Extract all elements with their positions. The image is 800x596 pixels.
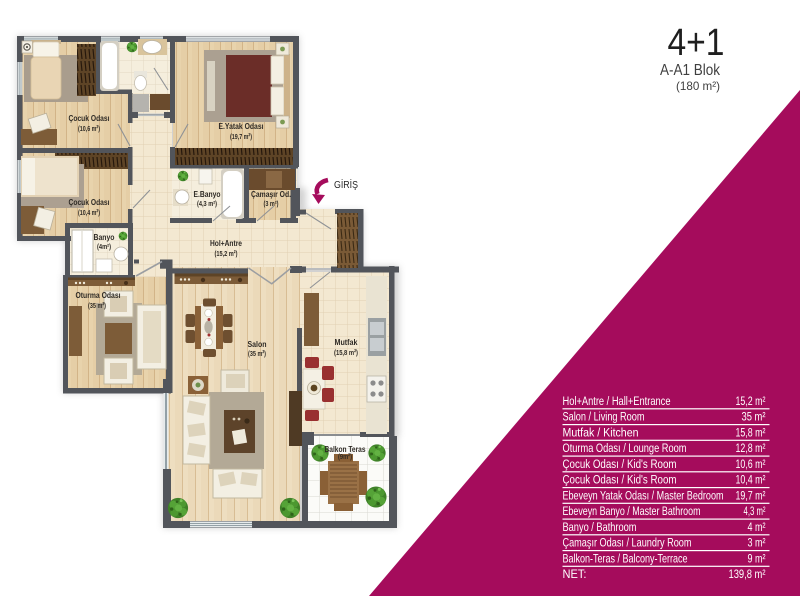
svg-text:Çamaşır Od.: Çamaşır Od. [251, 190, 291, 199]
svg-text:GİRİŞ: GİRİŞ [334, 178, 358, 191]
svg-text:Mutfak: Mutfak [335, 337, 358, 347]
svg-text:19,7 m²: 19,7 m² [736, 488, 766, 502]
svg-text:(10,4 m²): (10,4 m²) [78, 208, 100, 217]
svg-text:3 m²: 3 m² [748, 536, 766, 550]
svg-text:Çocuk Odası / Kid's Room: Çocuk Odası / Kid's Room [563, 473, 677, 487]
svg-text:Balkon-Teras / Balcony-Terrace: Balkon-Teras / Balcony-Terrace [563, 551, 688, 565]
svg-text:E.Banyo: E.Banyo [194, 190, 221, 199]
svg-text:Banyo: Banyo [94, 233, 115, 242]
svg-text:10,4 m²: 10,4 m² [736, 473, 766, 487]
svg-text:35 m²: 35 m² [742, 410, 766, 424]
svg-text:Banyo / Bathroom: Banyo / Bathroom [563, 520, 637, 534]
svg-text:139,8 m²: 139,8 m² [729, 567, 766, 581]
svg-text:Oturma Odası: Oturma Odası [76, 290, 121, 300]
svg-text:Ebeveyn Yatak Odası / Master B: Ebeveyn Yatak Odası / Master Bedroom [563, 488, 724, 502]
svg-text:12,8 m²: 12,8 m² [736, 441, 766, 455]
svg-text:Çocuk Odası: Çocuk Odası [69, 113, 110, 123]
svg-text:4+1: 4+1 [668, 22, 725, 64]
svg-text:9 m²: 9 m² [748, 551, 766, 565]
svg-text:15,2 m²: 15,2 m² [736, 394, 766, 408]
svg-text:NET:: NET: [563, 567, 587, 581]
svg-text:(35 m²): (35 m²) [248, 349, 266, 358]
svg-text:(15,8 m²): (15,8 m²) [334, 348, 358, 357]
svg-text:(19,7 m²): (19,7 m²) [230, 132, 252, 141]
svg-text:(35 m²): (35 m²) [88, 301, 106, 310]
svg-text:(4m²): (4m²) [97, 242, 111, 251]
svg-text:4,3 m²: 4,3 m² [744, 504, 766, 518]
svg-text:(180 m²): (180 m²) [676, 79, 720, 93]
svg-text:4 m²: 4 m² [748, 520, 766, 534]
svg-text:Çamaşır Odası / Laundry Room: Çamaşır Odası / Laundry Room [563, 536, 692, 550]
svg-text:Hol+Antre / Hall+Entrance: Hol+Antre / Hall+Entrance [563, 394, 671, 408]
svg-text:E.Yatak Odası: E.Yatak Odası [219, 121, 264, 131]
svg-text:Salon / Living Room: Salon / Living Room [563, 410, 645, 424]
svg-text:A-A1 Blok: A-A1 Blok [660, 62, 721, 79]
svg-text:15,8 m²: 15,8 m² [736, 425, 766, 439]
svg-text:10,6 m²: 10,6 m² [736, 457, 766, 471]
svg-text:(15,2 m²): (15,2 m²) [215, 249, 238, 258]
svg-text:Hol+Antre: Hol+Antre [210, 238, 242, 248]
svg-text:(9m²): (9m²) [338, 452, 352, 461]
svg-text:Salon: Salon [248, 339, 267, 349]
svg-text:Mutfak / Kitchen: Mutfak / Kitchen [563, 425, 639, 439]
svg-text:Oturma Odası / Lounge Room: Oturma Odası / Lounge Room [563, 441, 687, 455]
svg-text:(3 m²): (3 m²) [264, 199, 279, 208]
svg-text:(4,3 m²): (4,3 m²) [197, 199, 217, 208]
svg-text:Çocuk Odası / Kid's Room: Çocuk Odası / Kid's Room [563, 457, 677, 471]
svg-text:(10,6 m²): (10,6 m²) [78, 124, 100, 133]
svg-text:Ebeveyn Banyo / Master Bathroo: Ebeveyn Banyo / Master Bathroom [563, 504, 701, 518]
svg-text:Çocuk Odası: Çocuk Odası [69, 197, 110, 207]
